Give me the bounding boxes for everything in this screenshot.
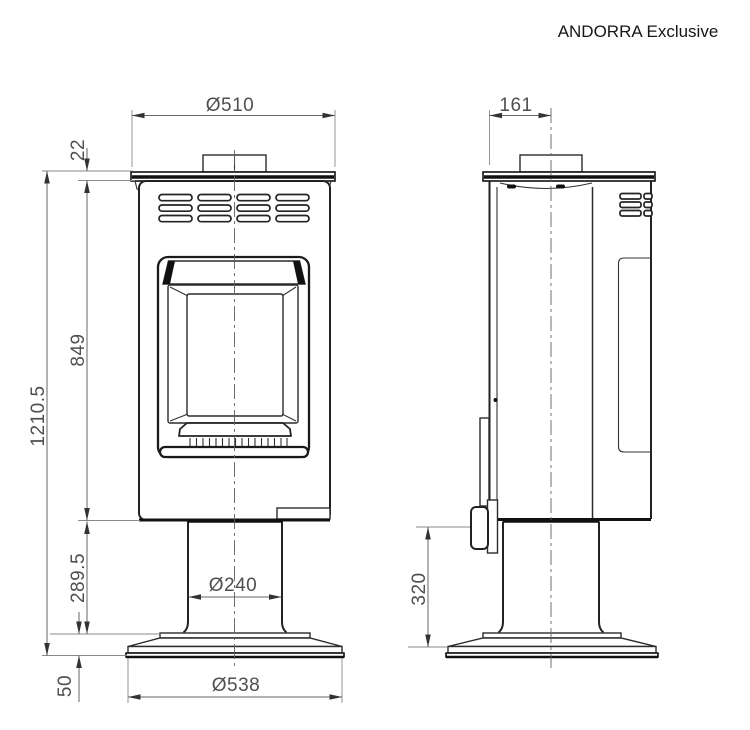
dim-plate-thickness: 22 [68,139,89,161]
dim-pedestal-diameter: Ø240 [209,575,257,596]
dim-base-height: 50 [55,675,76,697]
front-base [126,633,344,657]
dim-body-height: 849 [68,333,89,366]
drawing-canvas: Ø510 22 849 1210.5 289.5 Ø240 Ø538 50 [0,0,750,730]
drawing-title: ANDORRA Exclusive [558,22,719,41]
door-air-deflector [179,423,291,436]
door-bottom-bar [160,447,308,457]
side-body [489,181,651,520]
front-door [158,257,309,457]
dim-flue-offset: 161 [499,95,532,116]
door-top-bar [163,261,305,284]
side-vent-grille [620,194,652,217]
dim-front-top-diameter: Ø510 [206,95,254,116]
door-hinge-pin [494,398,498,402]
dim-total-height: 1210.5 [28,385,49,446]
technical-drawing: Ø510 22 849 1210.5 289.5 Ø240 Ø538 50 [0,0,750,730]
dim-pedestal-height: 289.5 [68,553,89,603]
side-base [446,633,658,657]
dim-handle-to-floor: 320 [409,572,430,605]
handle-knob [471,507,488,549]
front-bottom-step [277,508,330,519]
handle-lever [480,418,489,506]
side-view [446,108,658,668]
side-panel-seam [619,258,652,452]
dim-base-diameter: Ø538 [212,675,260,696]
door-window [187,294,283,416]
